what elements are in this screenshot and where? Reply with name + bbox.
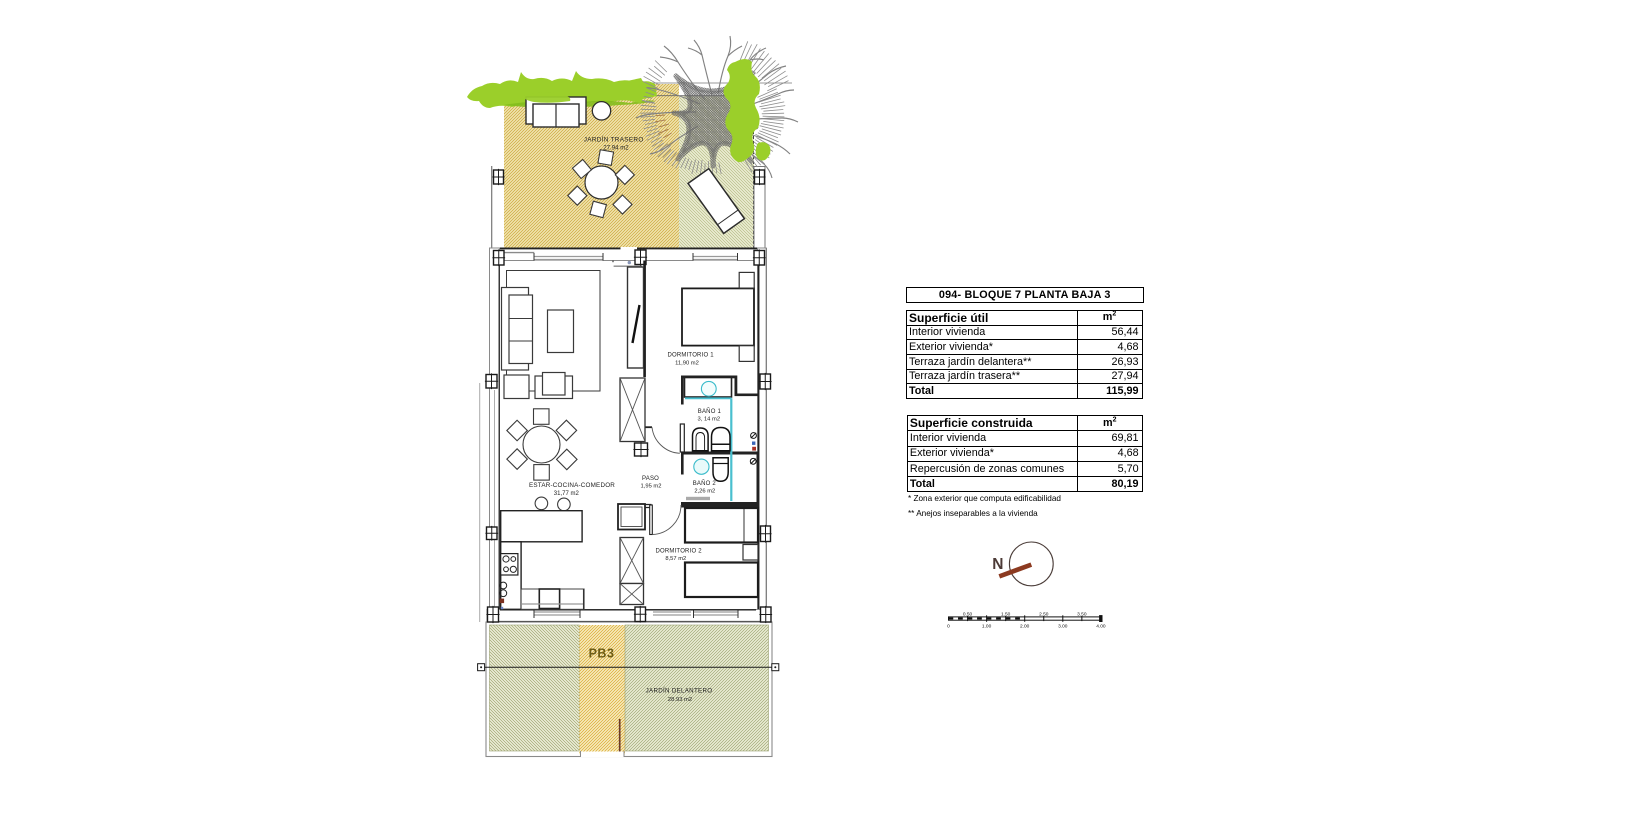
svg-text:0: 0 [947, 623, 950, 629]
svg-text:1.00: 1.00 [982, 623, 992, 629]
svg-text:0.50: 0.50 [963, 611, 973, 617]
svg-text:PB3: PB3 [589, 647, 615, 661]
svg-text:PASO: PASO [642, 476, 659, 482]
svg-text:BAÑO 1: BAÑO 1 [698, 408, 722, 415]
svg-text:1,95 m2: 1,95 m2 [641, 483, 662, 489]
svg-text:27.94 m2: 27.94 m2 [603, 144, 629, 151]
svg-text:8,57 m2: 8,57 m2 [665, 556, 686, 562]
svg-text:2.50: 2.50 [1039, 611, 1049, 617]
svg-text:2.00: 2.00 [1020, 623, 1030, 629]
svg-text:1.50: 1.50 [1001, 611, 1011, 617]
svg-text:3, 14 m2: 3, 14 m2 [698, 416, 721, 422]
svg-text:31,77 m2: 31,77 m2 [554, 491, 580, 497]
svg-text:BAÑO 2: BAÑO 2 [693, 480, 717, 487]
svg-text:3.50: 3.50 [1077, 611, 1087, 617]
svg-text:N: N [992, 556, 1003, 573]
svg-text:ESTAR-COCINA-COMEDOR: ESTAR-COCINA-COMEDOR [529, 482, 615, 489]
svg-text:2,26 m2: 2,26 m2 [694, 489, 715, 495]
svg-text:JARDÍN TRASERO: JARDÍN TRASERO [584, 134, 644, 143]
svg-text:11,90 m2: 11,90 m2 [675, 360, 699, 366]
svg-text:4.00: 4.00 [1096, 623, 1106, 629]
svg-text:28.93 m2: 28.93 m2 [668, 697, 692, 703]
svg-text:3.00: 3.00 [1058, 623, 1068, 629]
svg-text:JARDÍN DELANTERO: JARDÍN DELANTERO [646, 688, 713, 695]
svg-text:DORMITORIO 2: DORMITORIO 2 [655, 549, 702, 555]
svg-text:DORMITORIO 1: DORMITORIO 1 [667, 352, 714, 358]
